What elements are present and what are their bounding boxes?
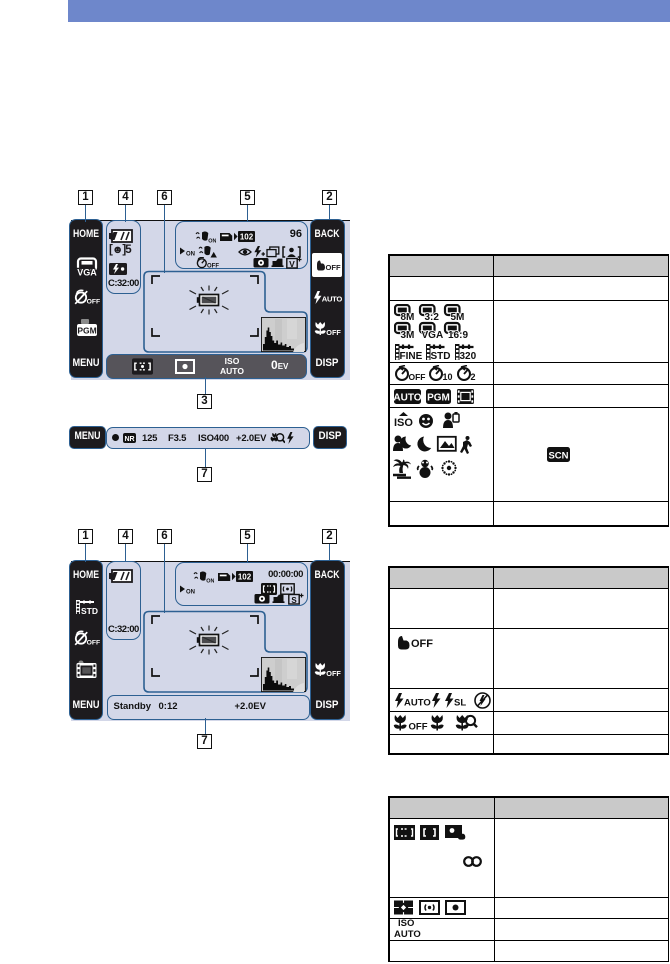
svg-text:3:2: 3:2 [425, 312, 440, 323]
svg-text:VGA: VGA [422, 330, 444, 341]
svg-text:OFF: OFF [326, 328, 341, 337]
svg-text:OFF: OFF [326, 263, 342, 272]
svg-text:MENU: MENU [74, 430, 100, 442]
svg-text:STD: STD [431, 351, 451, 361]
svg-text:S: S [291, 596, 297, 605]
svg-text:ON: ON [186, 252, 195, 258]
svg-text:AUTO: AUTO [404, 697, 431, 708]
svg-text:DISP: DISP [316, 699, 339, 711]
svg-text:NR: NR [124, 436, 134, 443]
svg-text:BACK: BACK [315, 569, 340, 581]
svg-text:ON: ON [206, 579, 214, 585]
svg-text:HOME: HOME [73, 569, 99, 581]
svg-text:ISO: ISO [394, 417, 413, 429]
svg-text:10: 10 [443, 372, 453, 382]
svg-text:ON: ON [208, 239, 216, 245]
svg-text:OFF: OFF [86, 299, 99, 306]
svg-text:STD: STD [81, 606, 98, 616]
svg-text:SCN: SCN [548, 451, 568, 462]
svg-text:SL: SL [454, 697, 466, 708]
svg-text:PGM: PGM [77, 326, 96, 336]
svg-text:OFF: OFF [326, 669, 341, 678]
svg-text:AUTO: AUTO [322, 295, 343, 304]
svg-text:102: 102 [240, 233, 254, 242]
svg-text:OFF: OFF [409, 372, 426, 382]
svg-text:5M: 5M [451, 312, 465, 323]
svg-text:8M: 8M [401, 312, 415, 323]
svg-text:V: V [289, 259, 295, 269]
svg-text:16:9: 16:9 [448, 330, 468, 341]
svg-text:DISP: DISP [316, 357, 339, 369]
svg-text:ON: ON [186, 590, 195, 596]
svg-text:MENU: MENU [72, 699, 99, 711]
svg-text:VGA: VGA [77, 268, 97, 278]
svg-text:FINE: FINE [400, 351, 423, 361]
svg-text:320: 320 [460, 351, 477, 361]
svg-text:BACK: BACK [315, 228, 340, 240]
svg-text:AUTO: AUTO [394, 392, 422, 403]
svg-text:OFF: OFF [409, 722, 428, 733]
svg-text:DISP: DISP [319, 430, 342, 442]
svg-text:OFF: OFF [207, 264, 219, 270]
svg-text:OFF: OFF [411, 638, 433, 650]
svg-text:PGM: PGM [427, 392, 450, 403]
svg-text:3M: 3M [401, 330, 415, 341]
svg-text:102: 102 [238, 573, 252, 582]
svg-text:MENU: MENU [72, 357, 99, 369]
svg-text:2: 2 [471, 372, 476, 382]
svg-text:OFF: OFF [86, 640, 99, 647]
svg-text:HOME: HOME [73, 228, 99, 240]
